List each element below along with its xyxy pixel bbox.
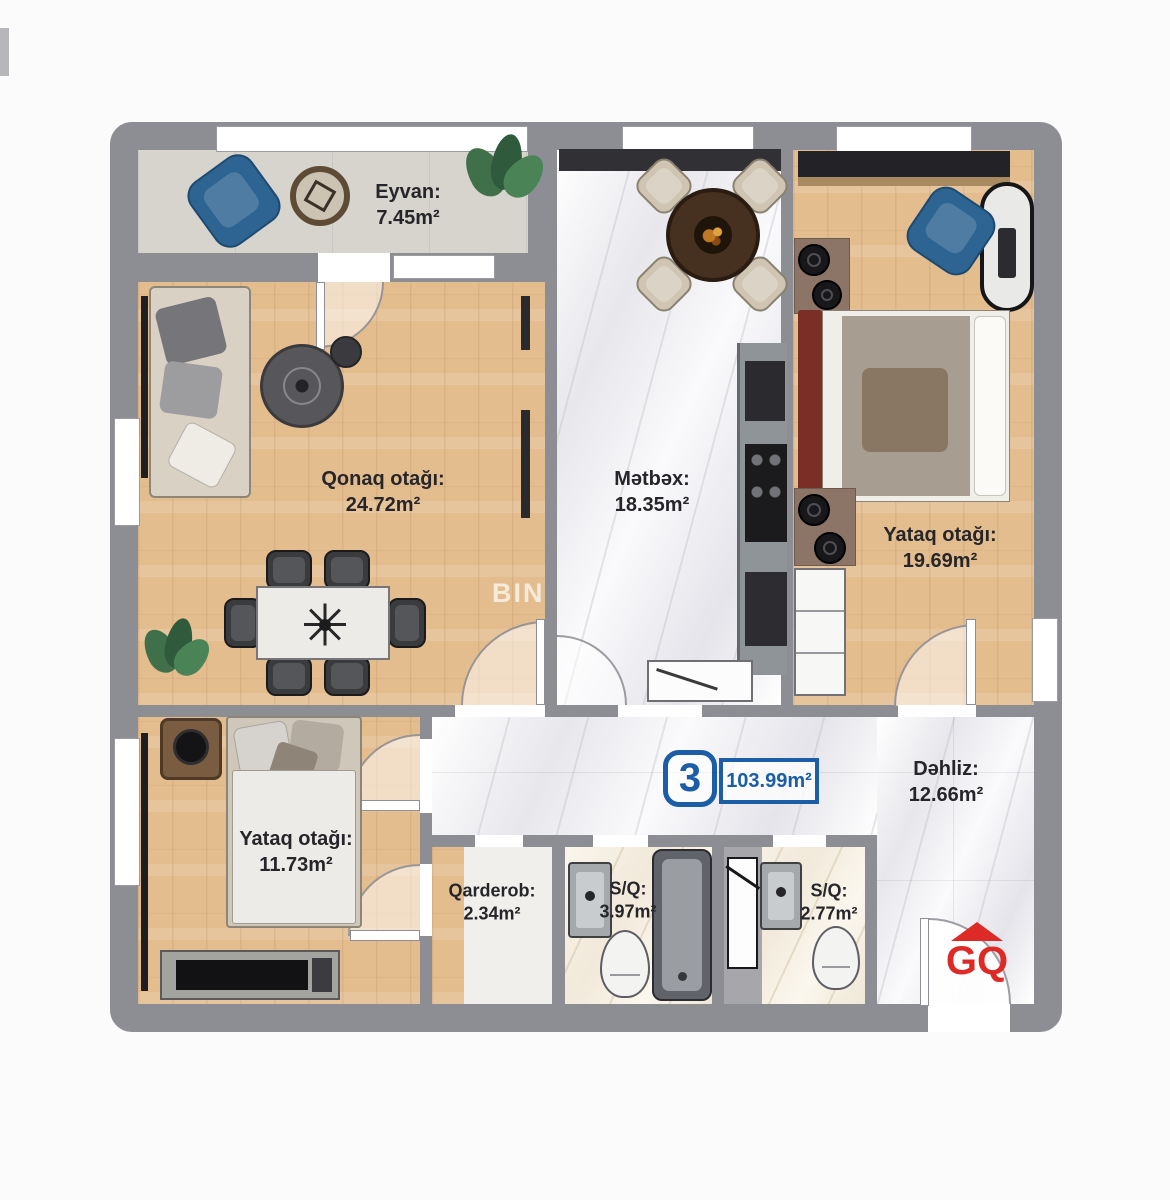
room-area: 18.35m² [614, 492, 690, 518]
room-label-sq1: S/Q: 3.97m² [599, 878, 656, 925]
door-threshold-2 [350, 930, 420, 941]
oven [745, 572, 787, 646]
dining-chair [324, 656, 370, 696]
mirror-unit-detail [998, 228, 1016, 278]
tile-line [877, 880, 1034, 881]
wall-bath-top-seg [523, 835, 593, 847]
door-gap-bedroom-bottom-1 [420, 739, 432, 813]
room-label-yataq-right: Yataq otağı: 19.69m² [883, 522, 996, 574]
side-table [330, 336, 362, 368]
tv [176, 960, 308, 990]
wall-corridor-seg [976, 705, 1034, 717]
door-leaf-living [536, 619, 545, 705]
room-name: S/Q: [800, 880, 857, 903]
stove [745, 444, 787, 542]
desk-stool [812, 280, 842, 310]
nightstand-lamp [173, 729, 209, 765]
room-area: 7.45m² [375, 205, 441, 231]
window-right-wall [1032, 618, 1058, 702]
room-label-dehliz: Dəhliz: 12.66m² [909, 756, 984, 808]
island-detail [656, 668, 718, 691]
wall-bedroom2-seg [420, 936, 432, 1004]
wardrobe-shelf [798, 177, 1010, 186]
floor-plan-canvas: Eyvan: 7.45m² Qonaq otağı: 24.72m² Mətbə… [0, 0, 1170, 1200]
total-area: 103.99m² [726, 770, 812, 793]
gq-logo: GQ [938, 922, 1016, 981]
kitchen-island [647, 660, 753, 702]
wall-corridor-seg [702, 705, 898, 717]
dining-chair [266, 550, 312, 590]
wall-bath-top-seg [432, 835, 475, 847]
speaker [312, 958, 332, 992]
room-area: 11.73m² [239, 852, 352, 878]
dining-chair [324, 550, 370, 590]
wall-bedroom2-seg [420, 813, 432, 864]
door-gap-living [455, 705, 545, 717]
dining-chair [388, 598, 426, 648]
room-label-qarderob: Qarderob: 2.34m² [448, 880, 535, 927]
desk-stool [798, 494, 830, 526]
bathtub [652, 849, 712, 1001]
wall-bath-top-seg [648, 835, 773, 847]
room-label-metbex: Mətbəx: 18.35m² [614, 466, 690, 518]
room-name: Eyvan: [375, 179, 441, 205]
wall-corridor-seg [545, 705, 618, 717]
curtain-rail [141, 733, 148, 991]
door-leaf-balcony [316, 282, 325, 350]
kitchen-appliance [745, 361, 785, 421]
sink [760, 862, 802, 930]
wall-bath2-hallway [865, 847, 877, 1004]
sofa-cushion [166, 420, 239, 490]
balcony-plant [468, 134, 542, 230]
room-area: 3.97m² [599, 901, 656, 924]
bed-pillow [974, 316, 1006, 496]
tv-unit [521, 296, 530, 350]
table-pattern-center [319, 619, 331, 631]
nightstand [160, 718, 222, 780]
room-area: 19.69m² [883, 548, 996, 574]
room-name: S/Q: [599, 878, 656, 901]
door-gap-bathroom2 [773, 835, 826, 847]
apartment-number: 3 [679, 756, 701, 801]
media-shelf [521, 410, 530, 518]
desk-stool [814, 532, 846, 564]
room-name: Dəhliz: [909, 756, 984, 782]
room-label-qonaq: Qonaq otağı: 24.72m² [321, 466, 444, 518]
room-area: 24.72m² [321, 492, 444, 518]
door-gap-balcony [318, 253, 390, 282]
entrance-door-gap [928, 1004, 1010, 1032]
room-name: Qonaq otağı: [321, 466, 444, 492]
apartment-number-badge: 3 [663, 750, 717, 807]
door-gap-wardrobe [475, 835, 523, 847]
sofa [149, 286, 251, 498]
bedroom-right-bed [798, 310, 1010, 502]
bedroom-bottom-bed [226, 716, 362, 928]
entrance-door-leaf [920, 918, 929, 1006]
door-gap-bedroom-right [898, 705, 976, 717]
shower-panel [727, 857, 758, 969]
balcony-coffee-table [290, 166, 350, 226]
window-bedroom-right [836, 126, 972, 152]
window-bedroom-bottom [114, 738, 140, 886]
desk-stool [798, 244, 830, 276]
dining-chair [266, 656, 312, 696]
sofa-cushion [159, 360, 224, 420]
watermark: BIN [492, 578, 545, 609]
mirror-unit [980, 182, 1034, 312]
wall-living-kitchen [545, 282, 557, 705]
room-label-sq2: S/Q: 2.77m² [800, 880, 857, 927]
room-area: 2.77m² [800, 903, 857, 926]
door-gap-kitchen [618, 705, 702, 717]
room-area: 12.66m² [909, 782, 984, 808]
total-area-box: 103.99m² [719, 758, 819, 804]
bed-cushion [862, 368, 948, 452]
window-balcony-living [393, 255, 495, 279]
wall-bedroom2-seg [420, 717, 432, 739]
kitchen-round-table [666, 188, 760, 282]
living-plant [146, 618, 210, 694]
wall-bath1-bath2 [712, 847, 724, 1004]
door-leaf-bedroom-right [966, 619, 976, 705]
dining-table [256, 586, 390, 660]
drawer-unit [794, 568, 846, 696]
room-name: Mətbəx: [614, 466, 690, 492]
kitchen-counter [737, 343, 787, 675]
curtain-rail [141, 296, 148, 478]
sofa-cushion [154, 295, 228, 366]
room-name: Yataq otağı: [239, 826, 352, 852]
door-gap-bathroom1 [593, 835, 648, 847]
room-area: 2.34m² [448, 903, 535, 926]
dresser [160, 950, 340, 1000]
room-label-eyvan: Eyvan: 7.45m² [375, 179, 441, 231]
wall-bath-top-seg [826, 835, 877, 847]
edge-artifact [0, 28, 9, 76]
window-living [114, 418, 140, 526]
room-name: Qarderob: [448, 880, 535, 903]
wardrobe [798, 151, 1010, 177]
gq-logo-text: GQ [938, 941, 1016, 981]
room-label-yataq-bottom: Yataq otağı: 11.73m² [239, 826, 352, 878]
wall-wardrobe-bath1 [552, 847, 565, 1004]
room-name: Yataq otağı: [883, 522, 996, 548]
door-gap-bedroom-bottom-2 [420, 864, 432, 936]
bed-frame [798, 310, 822, 502]
